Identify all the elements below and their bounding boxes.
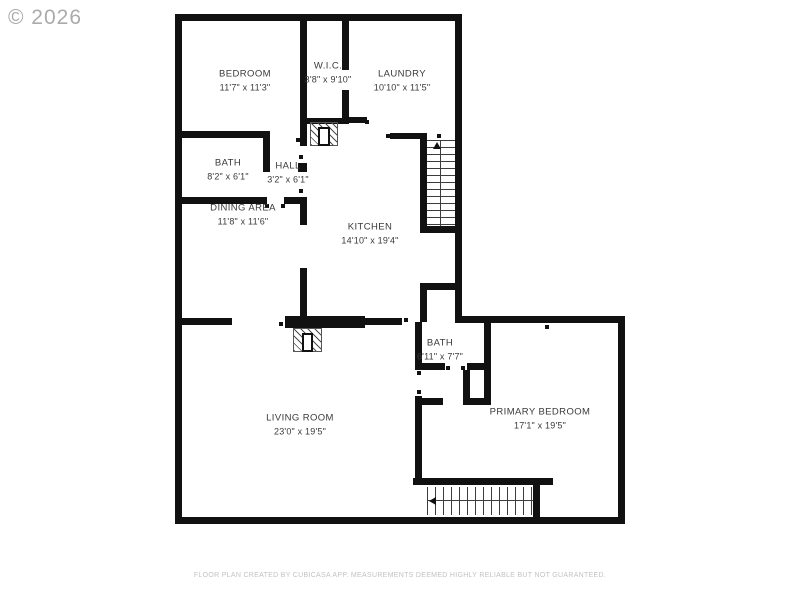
room-label-bath-2: BATH 6'11" x 7'7": [417, 338, 463, 363]
staircase-lower: [427, 487, 533, 515]
door-jamb-tick: [281, 204, 285, 208]
room-label-wic: W.I.C. 3'8" x 9'10": [305, 61, 352, 86]
wall-segment: [175, 517, 625, 524]
staircase-upper: [427, 140, 455, 226]
room-dimensions: 3'8" x 9'10": [305, 74, 352, 86]
wall-segment: [463, 370, 470, 405]
stair-direction-up-icon: [433, 142, 441, 149]
room-name: DINING AREA: [210, 203, 276, 215]
room-dimensions: 11'7" x 11'3": [219, 82, 271, 94]
room-name: BEDROOM: [219, 69, 271, 81]
door-jamb-tick: [446, 366, 450, 370]
door-jamb-tick: [545, 325, 549, 329]
wall-segment: [390, 133, 427, 139]
room-dimensions: 17'1" x 19'5": [490, 420, 591, 432]
wall-segment: [467, 363, 491, 370]
room-name: HALL: [267, 161, 309, 173]
floor-plan: © 2026 BEDROOM 11'7" x 11'3" W.I.C. 3'8"…: [0, 0, 800, 600]
wall-segment: [618, 316, 625, 524]
wall-segment: [420, 398, 443, 405]
door-jamb-tick: [417, 390, 421, 394]
room-dimensions: 8'2" x 6'1": [207, 171, 249, 183]
room-label-kitchen: KITCHEN 14'10" x 19'4": [341, 222, 398, 247]
wall-segment: [455, 14, 462, 322]
wall-segment: [285, 316, 365, 328]
room-dimensions: 3'2" x 6'1": [267, 174, 309, 186]
wall-segment: [365, 318, 402, 325]
wall-segment: [175, 14, 182, 524]
room-name: LIVING ROOM: [266, 413, 334, 425]
chimney-flue: [318, 127, 330, 146]
room-name: W.I.C.: [305, 61, 352, 73]
fireplace-flue: [302, 333, 313, 352]
wall-segment: [182, 318, 232, 325]
room-label-primary-bedroom: PRIMARY BEDROOM 17'1" x 19'5": [490, 407, 591, 432]
wall-segment: [300, 268, 307, 325]
room-dimensions: 14'10" x 19'4": [341, 235, 398, 247]
wall-segment: [300, 197, 307, 225]
disclaimer-text: FLOOR PLAN CREATED BY CUBICASA APP. MEAS…: [0, 572, 800, 579]
room-label-bath-1: BATH 8'2" x 6'1": [207, 158, 249, 183]
stair-direction-left-icon: [429, 497, 436, 505]
room-dimensions: 23'0" x 19'5": [266, 426, 334, 438]
copyright-watermark: © 2026: [8, 6, 82, 30]
room-name: BATH: [207, 158, 249, 170]
wall-segment: [415, 396, 422, 478]
door-jamb-tick: [437, 134, 441, 138]
room-dimensions: 6'11" x 7'7": [417, 351, 463, 363]
room-dimensions: 11'8" x 11'6": [210, 216, 276, 228]
wall-segment: [413, 478, 553, 485]
room-name: LAUNDRY: [374, 69, 431, 81]
room-label-hall: HALL 3'2" x 6'1": [267, 161, 309, 186]
wall-segment: [420, 290, 427, 322]
room-name: BATH: [417, 338, 463, 350]
room-label-bedroom: BEDROOM 11'7" x 11'3": [219, 69, 271, 94]
room-label-dining-area: DINING AREA 11'8" x 11'6": [210, 203, 276, 228]
wall-segment: [420, 133, 427, 233]
door-jamb-tick: [417, 371, 421, 375]
wall-segment: [182, 131, 270, 138]
room-name: KITCHEN: [341, 222, 398, 234]
door-jamb-tick: [299, 155, 303, 159]
door-jamb-tick: [279, 322, 283, 326]
room-label-laundry: LAUNDRY 10'10" x 11'5": [374, 69, 431, 94]
door-jamb-tick: [404, 318, 408, 322]
wall-segment: [342, 90, 349, 124]
wall-segment: [175, 14, 462, 21]
room-label-living-room: LIVING ROOM 23'0" x 19'5": [266, 413, 334, 438]
door-jamb-tick: [299, 189, 303, 193]
room-name: PRIMARY BEDROOM: [490, 407, 591, 419]
wall-segment: [455, 316, 625, 323]
room-dimensions: 10'10" x 11'5": [374, 82, 431, 94]
